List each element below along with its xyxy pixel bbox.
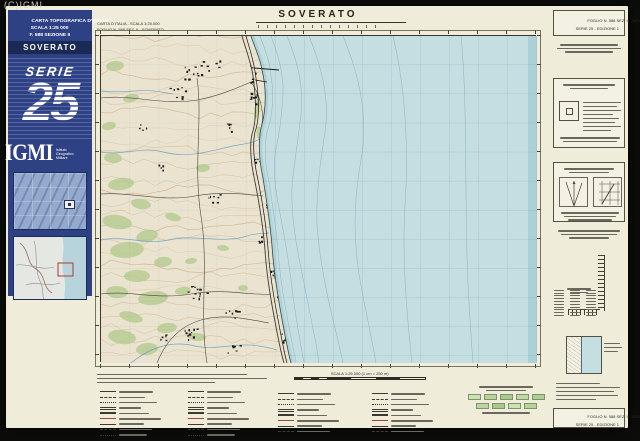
legend-row (100, 423, 184, 426)
legend-label (297, 409, 319, 411)
veg-swatch (532, 394, 545, 400)
sheet-id-box-top: FOGLIO N. 588 SEZ. II - SOVERATO SERIE 2… (553, 10, 625, 36)
cover-sheet-name: SOVERATO (8, 41, 92, 54)
veg-swatch (508, 403, 521, 409)
text-line (560, 44, 618, 46)
text-line (554, 298, 564, 299)
text-line (97, 378, 267, 380)
text-line (586, 301, 596, 302)
legend-symbol (372, 420, 388, 421)
legend-label (391, 415, 421, 417)
text-line (570, 312, 580, 313)
text-line (583, 106, 617, 108)
slope-gauge-vertical (598, 255, 605, 311)
veg-swatch (492, 403, 505, 409)
legend-row (188, 407, 272, 410)
legend-row (278, 414, 362, 417)
text-line (97, 382, 215, 384)
legend-symbol (188, 424, 204, 425)
production-notes (97, 371, 277, 386)
legend-label (119, 429, 152, 431)
text-line (556, 387, 620, 389)
legend-row (100, 412, 184, 415)
text-line (570, 295, 580, 296)
legend-symbol (100, 397, 116, 398)
legend-label (391, 420, 433, 422)
text-line (486, 390, 526, 392)
legend-label (119, 391, 153, 393)
legend-row (100, 401, 184, 404)
legend-label (207, 434, 235, 436)
legend-symbol (188, 402, 204, 403)
text-line (583, 130, 611, 132)
text-line (583, 122, 615, 124)
legend-label (207, 397, 233, 399)
legend-label (207, 423, 232, 425)
text-line (583, 118, 619, 120)
cover-index-map-grid (13, 172, 87, 230)
declination-box (553, 162, 625, 222)
text-line (570, 301, 580, 302)
legend-label (297, 399, 323, 401)
legend-symbol (100, 391, 116, 392)
legend-symbol (188, 412, 204, 414)
text-line (583, 110, 621, 112)
declination-diagram (559, 177, 588, 207)
text-line (556, 383, 600, 385)
cover-title-block: CARTA TOPOGRAFICA D'ITALIA SCALA 1:25 00… (8, 15, 92, 36)
text-line (586, 293, 596, 294)
text-line (479, 386, 533, 388)
legend-symbol (188, 429, 204, 430)
legend-symbol (278, 399, 294, 400)
text-line (586, 295, 596, 296)
margin-notes-3 (556, 380, 624, 403)
text-line (583, 126, 621, 128)
legend-symbol (100, 402, 116, 403)
legend-label (207, 413, 237, 415)
thumbnail-labels (604, 340, 624, 355)
legend-row (278, 403, 362, 406)
legend-symbol (188, 397, 204, 398)
legend-label (207, 407, 229, 409)
index-highlight-dot (68, 203, 71, 206)
margin-notes-1 (553, 42, 625, 55)
legend-row (188, 423, 272, 426)
boxB-heading (554, 84, 624, 89)
legend-row (372, 430, 456, 433)
text-line (586, 307, 596, 308)
text-line (557, 48, 621, 50)
legend-label (119, 407, 141, 409)
left-ticks (95, 35, 99, 362)
legend-row (278, 392, 362, 395)
legend-symbol (372, 426, 388, 427)
scale-bar (294, 377, 426, 380)
legend-symbol (372, 393, 388, 394)
legend-label (119, 402, 157, 404)
legend-symbol (278, 426, 294, 427)
text-line (554, 309, 564, 310)
legend-row (372, 392, 456, 395)
legend-column-3 (278, 390, 362, 436)
legend-symbol (278, 404, 294, 405)
text-line (569, 172, 609, 174)
legend-symbol (278, 431, 294, 432)
legend-row (100, 417, 184, 420)
text-line (570, 304, 580, 305)
text-line (586, 290, 596, 291)
legend-column-4 (372, 390, 456, 436)
legend-label (119, 397, 145, 399)
legend-symbol (278, 393, 294, 394)
text-line (570, 88, 608, 90)
text-line (570, 315, 580, 316)
thumbnail-land (567, 337, 582, 374)
legend-symbol (188, 435, 204, 436)
text-line (554, 312, 564, 313)
margin-text-columns (554, 288, 598, 334)
boxB-footnote (558, 135, 622, 144)
vegetation-swatch-row-2 (462, 403, 550, 409)
legend-row (100, 428, 184, 431)
cover-title-line2: SCALA 1:25 000 (31, 25, 69, 29)
legend-row (188, 412, 272, 415)
legend-symbol (100, 407, 116, 410)
legend-row (100, 434, 184, 437)
legend-row (372, 409, 456, 412)
legend-label (391, 431, 424, 433)
margin-notes-2 (553, 228, 625, 241)
legend-symbol (278, 409, 294, 412)
text-line (556, 399, 596, 401)
legend-row (100, 407, 184, 410)
text-line (556, 391, 614, 393)
legend-column-1 (100, 388, 184, 439)
legend-row (188, 428, 272, 431)
right-ticks (537, 35, 541, 362)
legend-row (278, 430, 362, 433)
text-line (570, 307, 580, 308)
legend-row (188, 396, 272, 399)
legend-row (100, 390, 184, 393)
grid-north-diagram (593, 177, 622, 207)
legend-symbol (372, 399, 388, 400)
text-line (570, 293, 580, 294)
legend-label (391, 425, 416, 427)
cover-panel: CARTA TOPOGRAFICA D'ITALIA SCALA 1:25 00… (8, 10, 92, 296)
vegetation-swatch-row-1 (462, 394, 550, 400)
legend-row (188, 401, 272, 404)
text-line (561, 234, 617, 236)
cover-index-map-roads (13, 236, 87, 300)
text-line (604, 343, 620, 345)
legend-row (278, 398, 362, 401)
veg-swatch (476, 403, 489, 409)
legend-symbol (372, 414, 388, 416)
legend-symbol (188, 418, 204, 419)
text-line (554, 301, 564, 302)
text-line (560, 137, 620, 139)
top-ticks (100, 30, 536, 34)
map-graphic (101, 36, 537, 363)
cover-stripes: SERIE 25 (8, 58, 92, 140)
legend-row (100, 396, 184, 399)
legend-symbol (100, 424, 116, 425)
legend-label (297, 404, 335, 406)
text-line (554, 307, 564, 308)
veg-swatch (468, 394, 481, 400)
text-line (554, 290, 564, 291)
sheet-id-bottom-line2: SERIE 25 - EDIZIONE 1 (576, 423, 619, 427)
legend-column-2 (188, 388, 272, 439)
text-line (561, 212, 619, 214)
text-line (556, 395, 618, 397)
legend-label (391, 404, 429, 406)
text-line (563, 84, 615, 86)
legend-label (119, 434, 147, 436)
legend-label (297, 431, 330, 433)
legend-symbol (372, 404, 388, 405)
title-rule (256, 22, 406, 23)
text-line (569, 237, 609, 239)
legend-symbol (100, 412, 116, 414)
legend-label (297, 393, 331, 395)
legend-symbol (188, 391, 204, 392)
legend-row (188, 417, 272, 420)
sheet-id-line2: SERIE 25 - EDIZIONE 1 (576, 27, 619, 31)
legend-row (372, 425, 456, 428)
scale-label: SCALA 1:25.000 (1 cm = 250 m) (331, 372, 389, 376)
boxC-heading (554, 168, 624, 173)
veg-swatch (484, 394, 497, 400)
text-line (586, 312, 596, 313)
legend-label (391, 393, 425, 395)
sheet-id-line1: FOGLIO N. 588 SEZ. II - SOVERATO (587, 19, 640, 23)
legend-label (119, 423, 144, 425)
text-line (482, 412, 530, 414)
legend-label (297, 425, 322, 427)
legend-label (207, 429, 240, 431)
sheet-id-bottom-line1: FOGLIO N. 588 SEZ. II - SOVERATO (587, 415, 640, 419)
text-line (570, 309, 580, 310)
legend-label (119, 418, 161, 420)
text-line (583, 102, 621, 104)
text-line (564, 168, 614, 170)
location-thumbnail-map (566, 336, 602, 374)
legend-row (372, 414, 456, 417)
legend-row (372, 398, 456, 401)
text-line (554, 295, 564, 296)
vegetation-legend-heading (462, 386, 550, 391)
legend-symbol (100, 435, 116, 436)
text-line (568, 219, 612, 221)
vegetation-legend-footnote (462, 412, 550, 414)
text-line (586, 309, 596, 310)
legend-row (372, 419, 456, 422)
text-line (563, 141, 617, 143)
legend-symbol (100, 418, 116, 419)
map-corner-caption: CARTA D'ITALIA - SCALA 1:25.000 FOGLIO N… (97, 13, 247, 25)
text-line (558, 230, 620, 232)
map-title: SOVERATO (258, 9, 378, 20)
legend-row (278, 409, 362, 412)
graticule-numbers (258, 25, 378, 28)
text-line (565, 51, 613, 53)
scale-bar-block: SCALA 1:25.000 (1 cm = 250 m) (285, 368, 435, 380)
reference-square-diagram (559, 101, 579, 121)
legend-label (207, 402, 245, 404)
cover-publisher: IGMI Istituto Geografico Militare (8, 142, 92, 165)
text-line (564, 216, 616, 218)
text-line (97, 374, 247, 376)
legend-row (372, 403, 456, 406)
reference-elements-box (553, 78, 625, 148)
legend-label (207, 418, 249, 420)
legend-label (207, 391, 241, 393)
sheet-id-box-bottom: FOGLIO N. 588 SEZ. II - SOVERATO SERIE 2… (553, 408, 625, 428)
legend-symbol (278, 414, 294, 416)
text-line (586, 304, 596, 305)
text-line (554, 315, 564, 316)
topographic-map (100, 35, 536, 362)
legend-symbol (278, 420, 294, 421)
legend-symbol (372, 431, 388, 432)
text-line (604, 351, 618, 353)
legend-label (297, 415, 327, 417)
legend-label (391, 399, 417, 401)
legend-symbol (188, 407, 204, 410)
text-line (604, 347, 622, 349)
igmi-subtitle: Istituto Geografico Militare (56, 148, 95, 160)
legend-label (391, 409, 413, 411)
veg-swatch (524, 403, 537, 409)
text-line (554, 293, 564, 294)
legend-row (278, 425, 362, 428)
text-line (586, 315, 596, 316)
legend-label (297, 420, 339, 422)
igmi-watermark: (C)IGMI (4, 0, 43, 10)
legend-row (188, 434, 272, 437)
igmi-logo: IGMI (5, 140, 53, 166)
text-line (554, 304, 564, 305)
text-line (586, 298, 596, 299)
boxB-table (583, 99, 623, 134)
veg-swatch (516, 394, 529, 400)
legend-label (119, 413, 149, 415)
boxC-footnote (559, 210, 621, 223)
cover-title-line1: CARTA TOPOGRAFICA D'ITALIA (31, 18, 107, 22)
legend-symbol (100, 429, 116, 430)
legend-row (188, 390, 272, 393)
text-line (570, 298, 580, 299)
legend-row (278, 419, 362, 422)
legend-symbol (372, 409, 388, 412)
road-index-graphic (14, 237, 87, 300)
veg-swatch (500, 394, 513, 400)
text-line (570, 290, 580, 291)
cover-series-number: 25 (8, 72, 92, 132)
vegetation-legend (462, 384, 550, 416)
cover-title-line3: F. 588 SEZIONE II (30, 32, 71, 36)
text-line (583, 114, 613, 116)
